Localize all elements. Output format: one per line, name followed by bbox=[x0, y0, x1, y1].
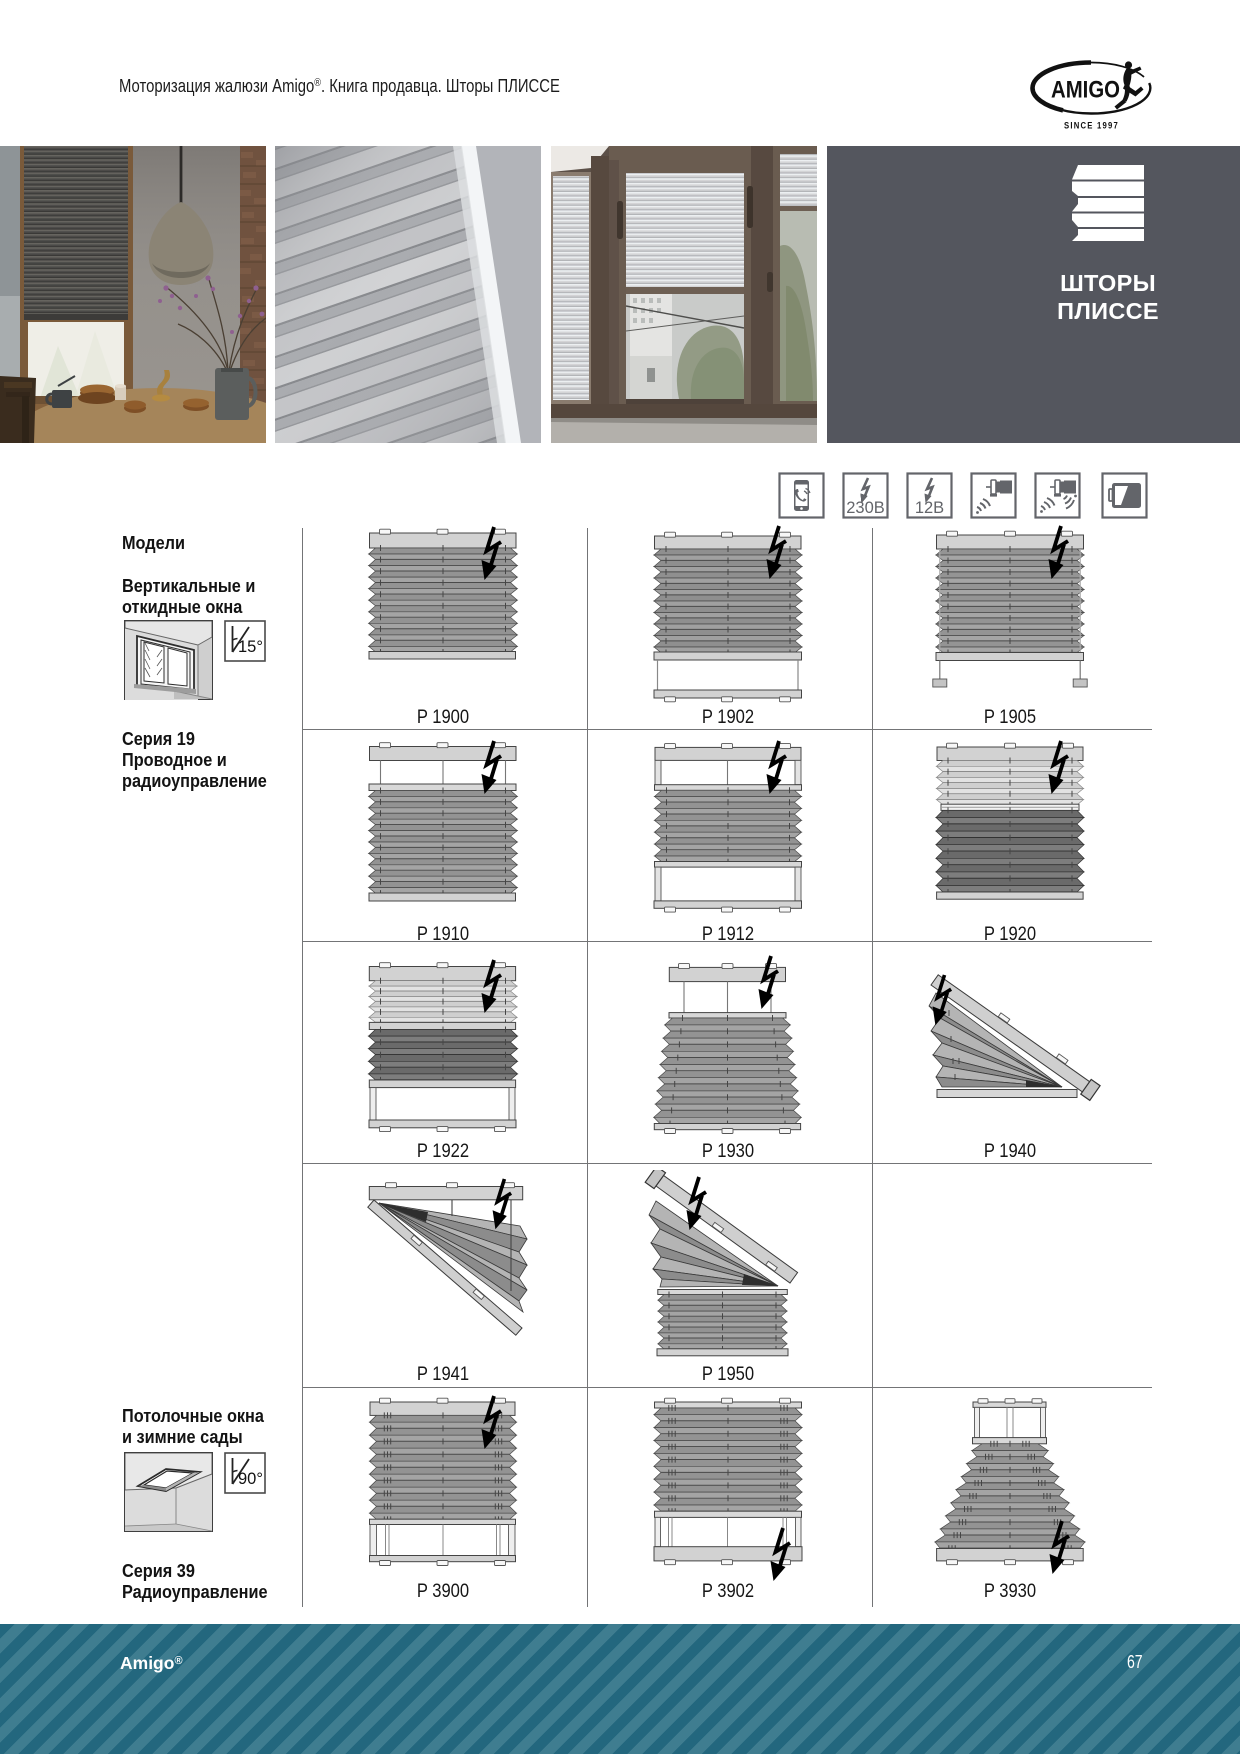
svg-text:AMIGO: AMIGO bbox=[1051, 77, 1120, 104]
svg-text:15°: 15° bbox=[238, 638, 263, 656]
svg-text:90°: 90° bbox=[238, 1470, 263, 1488]
svg-text:230В: 230В bbox=[846, 499, 885, 517]
svg-text:12В: 12В bbox=[915, 499, 944, 517]
svg-text:SINCE 1997: SINCE 1997 bbox=[1064, 121, 1119, 132]
